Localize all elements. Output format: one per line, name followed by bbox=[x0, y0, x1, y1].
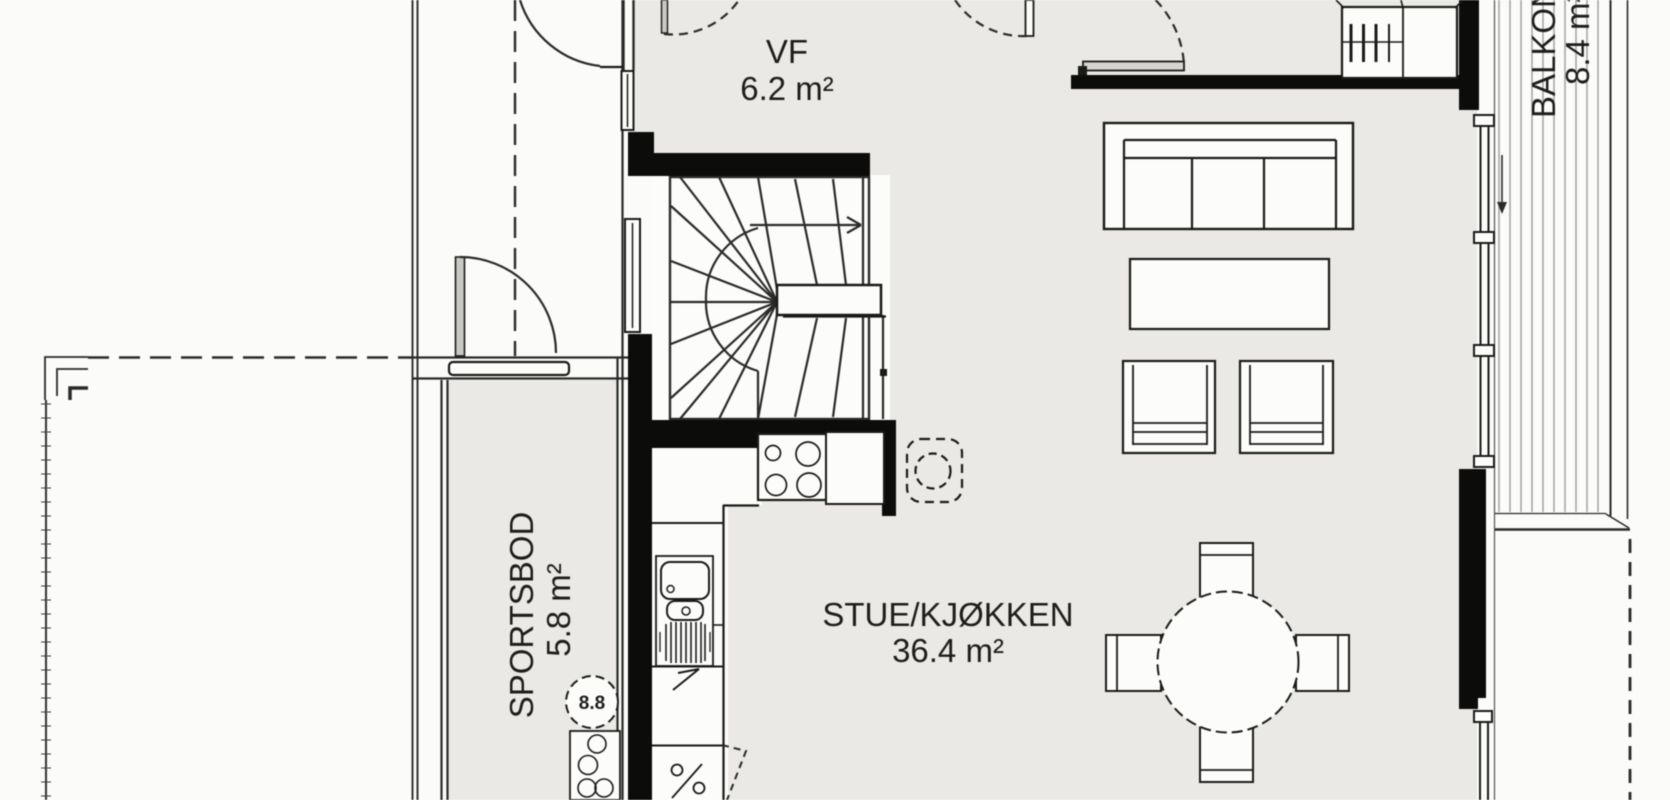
svg-text:VF: VF bbox=[766, 33, 808, 70]
svg-text:8.4 m²: 8.4 m² bbox=[1559, 0, 1596, 85]
svg-text:STUE/KJØKKEN: STUE/KJØKKEN bbox=[822, 596, 1073, 633]
svg-text:5.8 m²: 5.8 m² bbox=[540, 563, 577, 657]
svg-text:36.4 m²: 36.4 m² bbox=[892, 632, 1004, 669]
svg-text:8.8: 8.8 bbox=[579, 693, 605, 714]
svg-text:BALKONG: BALKONG bbox=[1525, 0, 1562, 118]
svg-text:6.2 m²: 6.2 m² bbox=[740, 70, 834, 107]
svg-text:SPORTSBOD: SPORTSBOD bbox=[503, 512, 540, 719]
